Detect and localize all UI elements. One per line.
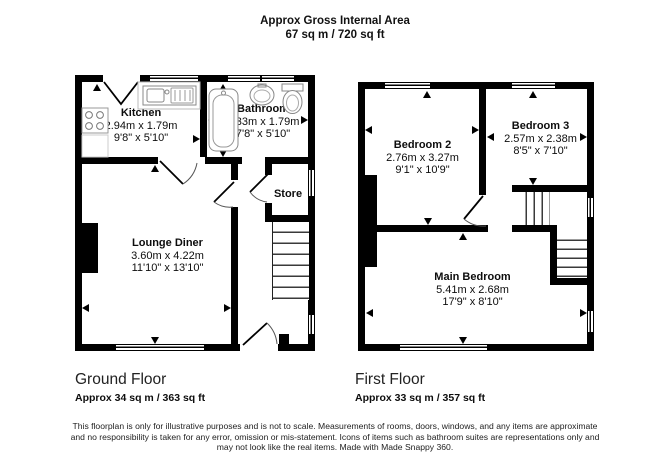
room-label-bathroom: Bathroom 2.33m x 1.79m 7'8" x 5'10" [207, 103, 319, 141]
header-title: Approx Gross Internal Area [0, 14, 670, 28]
measure-arrow-left [82, 304, 89, 312]
measure-arrow-down [151, 337, 159, 344]
measure-arrow-up [151, 165, 159, 172]
disclaimer-text: This floorplan is only for illustrative … [15, 421, 655, 453]
chimney-breast [75, 223, 98, 273]
window [587, 198, 594, 217]
measure-arrow-up [459, 233, 467, 240]
wall-segment [205, 157, 242, 164]
door-opening [103, 75, 140, 82]
window [262, 75, 294, 82]
wall-segment [265, 157, 315, 164]
wall-segment [200, 82, 207, 164]
room-label-kitchen: Kitchen 2.94m x 1.79m 9'8" x 5'10" [86, 107, 196, 145]
wall-segment [512, 185, 594, 192]
room-label-bedroom2: Bedroom 2 2.76m x 3.27m 9'1" x 10'9" [360, 139, 485, 177]
wall-segment [365, 225, 488, 232]
wall-segment [265, 215, 315, 222]
measure-arrow-left [365, 126, 372, 134]
measure-arrow-left [366, 309, 373, 317]
window [385, 82, 430, 89]
header-area: 67 sq m / 720 sq ft [0, 28, 670, 42]
wall-stub [279, 334, 289, 345]
ground-floor-area: Approx 34 sq m / 363 sq ft [75, 392, 205, 404]
wall-segment [75, 75, 82, 351]
ground-floor-title: Ground Floor [75, 371, 166, 389]
wall-segment [231, 164, 238, 180]
window [308, 315, 315, 334]
window [150, 75, 198, 82]
room-label-bedroom3: Bedroom 3 2.57m x 2.38m 8'5" x 7'10" [478, 120, 603, 158]
window [587, 311, 594, 332]
wall-segment [512, 225, 550, 232]
room-label-store: Store [262, 188, 314, 201]
kitchen-lounge-door [160, 161, 197, 184]
kitchen-back-door [104, 82, 138, 104]
measure-arrow-down [459, 337, 467, 344]
door-opening [158, 157, 205, 164]
wall-segment [265, 164, 272, 175]
wall-segment [550, 278, 594, 285]
staircase-lower [557, 232, 587, 278]
gross-internal-area-header: Approx Gross Internal Area 67 sq m / 720… [0, 14, 670, 42]
front-door [243, 323, 277, 345]
window [116, 344, 204, 351]
wall-segment [82, 157, 158, 164]
measure-arrow-up [529, 91, 537, 98]
bedroom2-door [464, 196, 486, 226]
room-label-lounge-diner: Lounge Diner 3.60m x 4.22m 11'10" x 13'1… [105, 237, 230, 275]
basin-icon [250, 84, 274, 105]
wall-segment [231, 207, 238, 344]
measure-arrow-down [91, 150, 99, 157]
measure-arrow-up [93, 84, 101, 91]
window [512, 82, 555, 89]
staircase [272, 222, 309, 300]
wall-segment [550, 225, 557, 285]
window [228, 75, 260, 82]
measure-arrow-up [423, 91, 431, 98]
window [400, 344, 487, 351]
door-opening [240, 344, 278, 351]
first-floor-area: Approx 33 sq m / 357 sq ft [355, 392, 485, 404]
measure-arrow-up [219, 84, 227, 91]
chimney-breast [358, 175, 377, 267]
measure-arrow-down [529, 178, 537, 185]
room-label-main-bedroom: Main Bedroom 5.41m x 2.68m 17'9" x 8'10" [400, 271, 545, 309]
staircase-upper [519, 192, 550, 225]
hall-lounge-door [214, 182, 234, 207]
floorplan-page: Approx Gross Internal Area 67 sq m / 720… [0, 0, 670, 461]
measure-arrow-right [224, 304, 231, 312]
first-floor-title: First Floor [355, 371, 425, 389]
measure-arrow-down [424, 218, 432, 225]
kitchen-counter-icon [138, 82, 200, 109]
measure-arrow-down [219, 150, 227, 157]
measure-arrow-right [580, 309, 587, 317]
